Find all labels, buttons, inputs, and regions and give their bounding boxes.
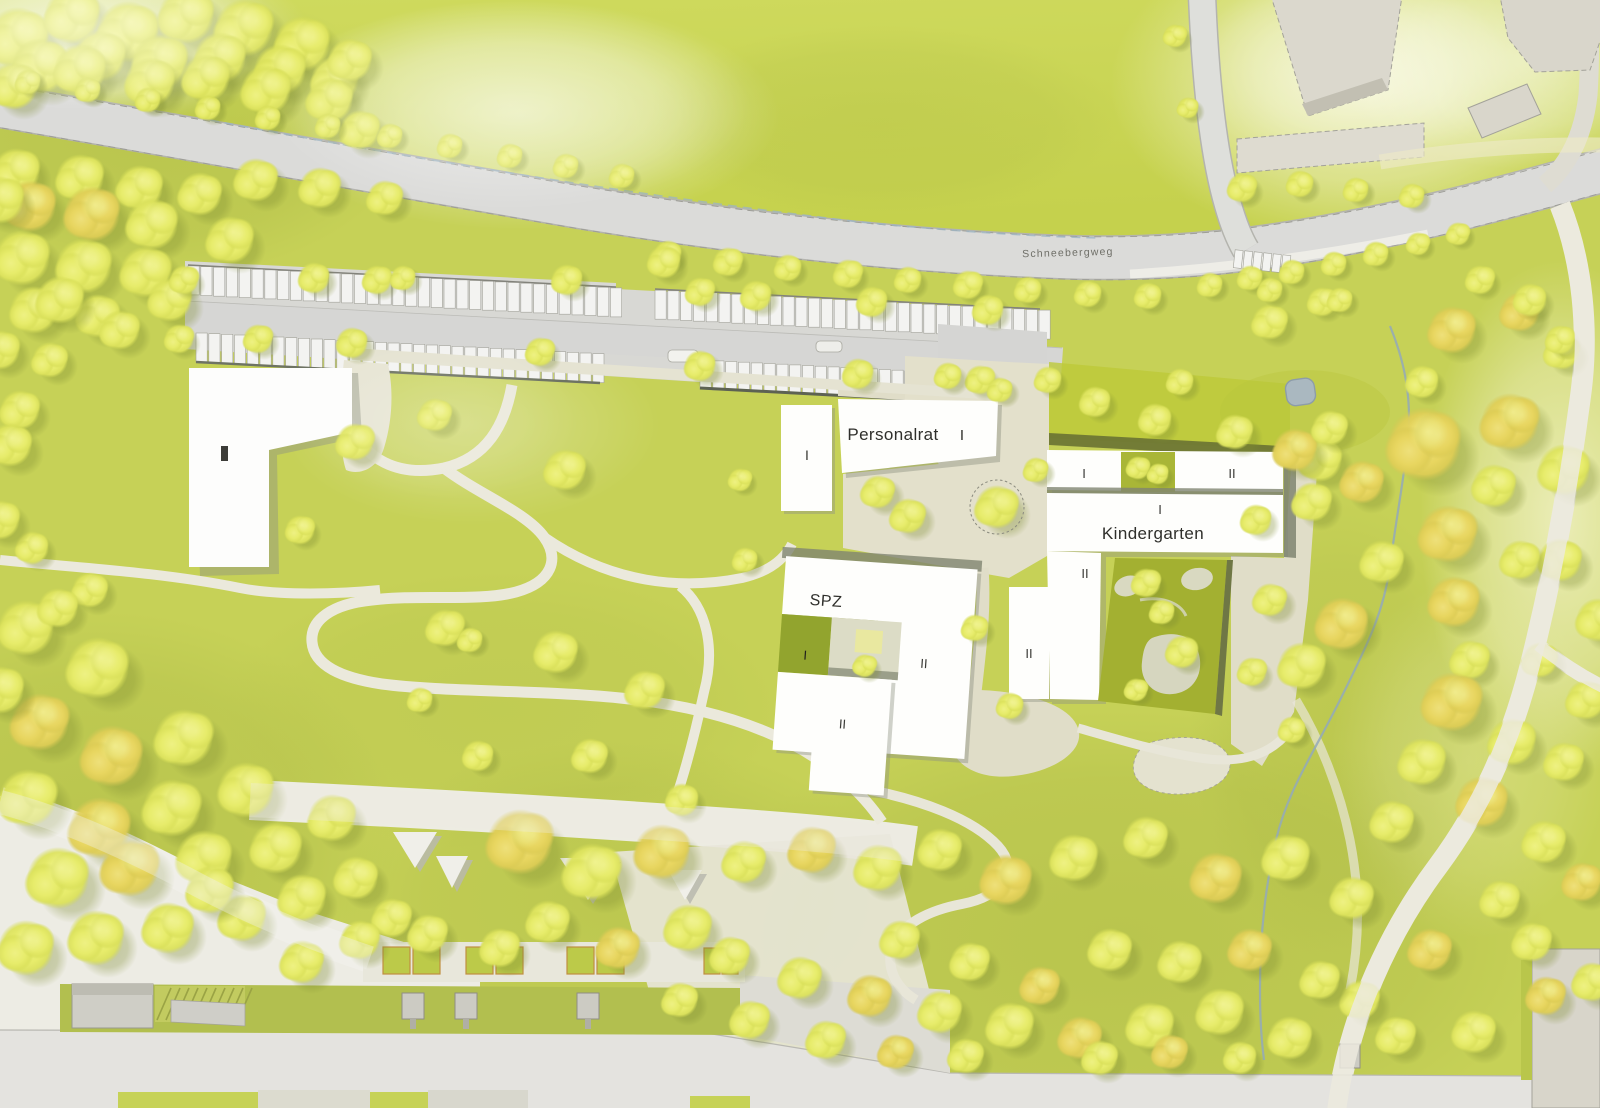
svg-text:II: II	[1081, 566, 1088, 581]
svg-text:I: I	[960, 427, 964, 444]
svg-text:SPZ: SPZ	[809, 592, 843, 611]
svg-text:II: II	[838, 716, 846, 731]
svg-text:I: I	[1158, 502, 1162, 517]
svg-text:Personalrat: Personalrat	[847, 425, 938, 444]
svg-text:Kindergarten: Kindergarten	[1102, 524, 1204, 543]
svg-text:II: II	[920, 656, 928, 671]
svg-text:I: I	[805, 447, 809, 463]
svg-text:II: II	[1228, 466, 1235, 481]
svg-text:II: II	[1025, 646, 1032, 661]
svg-text:Schneebergweg: Schneebergweg	[1022, 246, 1114, 260]
svg-text:I: I	[1082, 466, 1086, 481]
